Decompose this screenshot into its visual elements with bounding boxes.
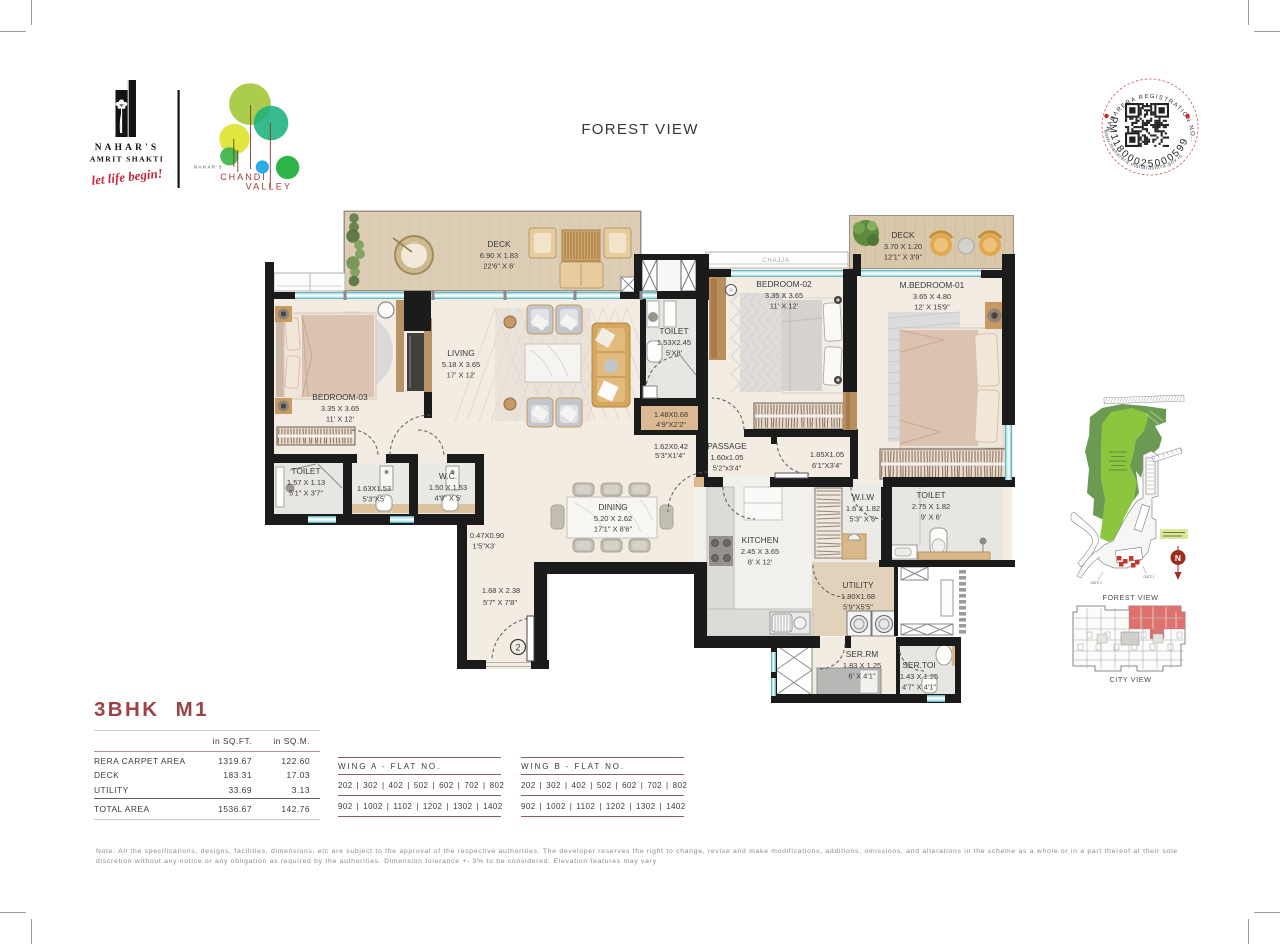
svg-text:BEDROOM-03: BEDROOM-03 xyxy=(312,392,368,402)
svg-text:NAHAR'S: NAHAR'S xyxy=(95,143,160,153)
svg-text:17' X 12': 17' X 12' xyxy=(447,371,476,380)
svg-text:PASSAGE: PASSAGE xyxy=(707,441,747,451)
svg-text:1'5"X3': 1'5"X3' xyxy=(472,542,496,551)
svg-text:1.80X1.68: 1.80X1.68 xyxy=(841,592,875,601)
svg-text:AMRIT SHAKTI: AMRIT SHAKTI xyxy=(90,155,164,164)
svg-text:1.53X2.45: 1.53X2.45 xyxy=(657,338,691,347)
svg-text:M.BEDROOM-01: M.BEDROOM-01 xyxy=(900,280,965,290)
svg-text:DECK: DECK xyxy=(891,230,915,240)
svg-text:12'1" X 3'9": 12'1" X 3'9" xyxy=(884,253,923,262)
svg-text:CITY VIEW: CITY VIEW xyxy=(1109,675,1151,684)
svg-text:KITCHEN: KITCHEN xyxy=(742,535,779,545)
svg-text:CHAJJA: CHAJJA xyxy=(762,258,789,264)
svg-text:1.6 X 1.82: 1.6 X 1.82 xyxy=(846,504,880,513)
svg-text:FOREST VIEW: FOREST VIEW xyxy=(1103,593,1159,602)
svg-text:2.75 X 1.82: 2.75 X 1.82 xyxy=(912,502,950,511)
svg-text:let life begin!: let life begin! xyxy=(91,165,164,187)
svg-text:GATE 2: GATE 2 xyxy=(1090,581,1101,585)
svg-text:NAHAR'S: NAHAR'S xyxy=(194,165,223,170)
svg-text:5'2"x3'4": 5'2"x3'4" xyxy=(713,464,742,473)
svg-text:TOILET: TOILET xyxy=(916,490,945,500)
svg-text:N: N xyxy=(1175,553,1181,563)
svg-text:LIVING: LIVING xyxy=(447,348,474,358)
svg-text:DECK: DECK xyxy=(487,239,511,249)
svg-text:0.47X0.90: 0.47X0.90 xyxy=(470,531,504,540)
svg-text:6' X 4'1": 6' X 4'1" xyxy=(848,672,876,681)
svg-text:5'3" X 6': 5'3" X 6' xyxy=(849,515,877,524)
svg-text:5'3"X5': 5'3"X5' xyxy=(362,495,386,504)
svg-text:4'7" X 4'1": 4'7" X 4'1" xyxy=(902,683,936,692)
svg-text:2: 2 xyxy=(515,643,520,653)
svg-text:3.70 X 1.20: 3.70 X 1.20 xyxy=(884,242,922,251)
svg-text:1.63X1.53: 1.63X1.53 xyxy=(357,484,391,493)
svg-text:SER.TOI: SER.TOI xyxy=(902,660,935,670)
svg-text:2.45 X 3.65: 2.45 X 3.65 xyxy=(741,547,779,556)
svg-text:BEDROOM-02: BEDROOM-02 xyxy=(756,279,812,289)
svg-text:1.50 X 1.53: 1.50 X 1.53 xyxy=(429,483,467,492)
svg-text:TOILET: TOILET xyxy=(291,466,320,476)
svg-text:3.35 X 3.65: 3.35 X 3.65 xyxy=(765,291,803,300)
svg-text:11' X 12': 11' X 12' xyxy=(326,415,355,424)
svg-text:8' X 12': 8' X 12' xyxy=(748,558,773,567)
svg-text:1.85X1.05: 1.85X1.05 xyxy=(810,450,844,459)
svg-text:1.48X0.68: 1.48X0.68 xyxy=(654,410,688,419)
svg-text:VALLEY: VALLEY xyxy=(246,182,293,192)
svg-text:W.I.W: W.I.W xyxy=(852,492,874,502)
svg-text:1.57 X 1.13: 1.57 X 1.13 xyxy=(287,478,325,487)
svg-text:GATE 1: GATE 1 xyxy=(1143,575,1154,579)
svg-text:5'X8': 5'X8' xyxy=(666,349,683,358)
svg-text:CHANDI: CHANDI xyxy=(220,172,267,182)
svg-text:9' X 6': 9' X 6' xyxy=(921,513,942,522)
svg-text:3.35 X 3.65: 3.35 X 3.65 xyxy=(321,404,359,413)
svg-text:4'9"X2'2": 4'9"X2'2" xyxy=(656,420,686,429)
svg-text:TOILET: TOILET xyxy=(659,326,688,336)
svg-text:1.83 X 1.25: 1.83 X 1.25 xyxy=(843,661,881,670)
svg-text:6.90 X 1.83: 6.90 X 1.83 xyxy=(480,251,518,260)
svg-text:17'1" X 8'6": 17'1" X 8'6" xyxy=(594,525,633,534)
svg-text:1.68 X 2.38: 1.68 X 2.38 xyxy=(482,586,520,595)
svg-text:W.C.: W.C. xyxy=(439,471,457,481)
svg-text:11' X 12': 11' X 12' xyxy=(770,302,799,311)
svg-text:5'7" X 7'8": 5'7" X 7'8" xyxy=(483,598,517,607)
svg-text:1.60x1.05: 1.60x1.05 xyxy=(711,453,744,462)
svg-text:5.18 X 3.65: 5.18 X 3.65 xyxy=(442,360,480,369)
svg-text:5'3"X1'4": 5'3"X1'4" xyxy=(655,451,685,460)
svg-text:UTILITY: UTILITY xyxy=(842,580,874,590)
svg-text:4'9" X 5': 4'9" X 5' xyxy=(434,494,462,503)
svg-text:SER.RM: SER.RM xyxy=(846,649,879,659)
svg-text:6'1"X3'4": 6'1"X3'4" xyxy=(812,461,842,470)
svg-text:1.62X0.42: 1.62X0.42 xyxy=(654,442,688,451)
svg-text:DINING: DINING xyxy=(598,502,627,512)
svg-text:12' X 15'9": 12' X 15'9" xyxy=(914,303,950,312)
svg-text:22'6" X 6': 22'6" X 6' xyxy=(483,262,515,271)
svg-text:5.20 X 2.62: 5.20 X 2.62 xyxy=(594,514,632,523)
svg-text:3.65 X 4.80: 3.65 X 4.80 xyxy=(913,292,951,301)
svg-text:1.43 X 1.25: 1.43 X 1.25 xyxy=(900,672,938,681)
svg-text:5'1" X 3'7": 5'1" X 3'7" xyxy=(289,489,323,498)
svg-text:5'9"X5'5": 5'9"X5'5" xyxy=(843,603,873,612)
